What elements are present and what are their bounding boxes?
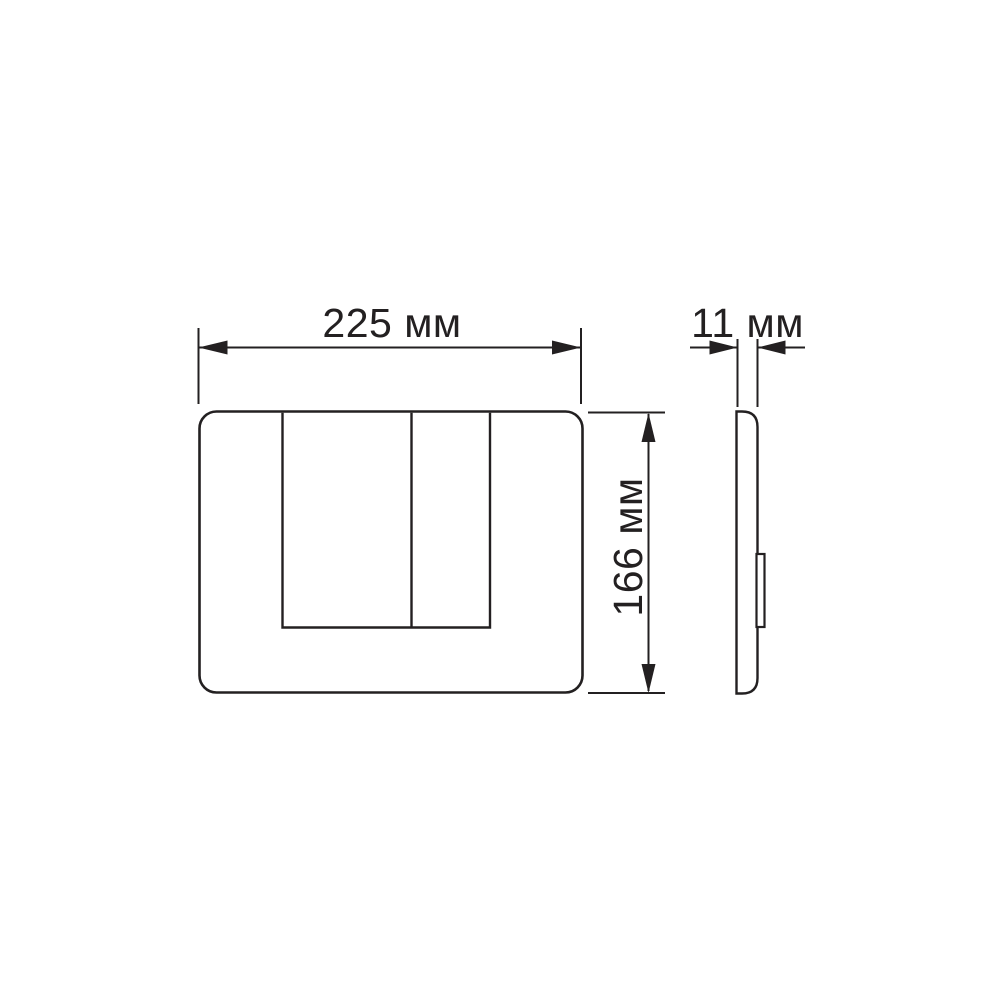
side-profile-outline — [737, 412, 758, 694]
arrowhead-left-icon — [199, 341, 228, 355]
technical-drawing-canvas: 225 мм 166 мм 11 мм — [0, 0, 1000, 1000]
dimension-width: 225 мм — [199, 300, 582, 404]
arrowhead-down-icon — [642, 664, 656, 693]
button-protrusion — [757, 554, 765, 627]
dimension-depth: 11 мм — [690, 300, 805, 407]
front-view — [200, 412, 583, 693]
side-view — [737, 412, 765, 694]
arrowhead-up-icon — [642, 413, 656, 442]
dimension-depth-label: 11 мм — [691, 300, 804, 346]
dimension-width-label: 225 мм — [322, 300, 461, 346]
arrowhead-right-icon — [552, 341, 581, 355]
plate-outline — [200, 412, 583, 693]
dimension-height-label: 166 мм — [605, 477, 651, 616]
flush-plate-dimension-drawing: 225 мм 166 мм 11 мм — [0, 0, 1000, 1000]
dimension-height: 166 мм — [588, 413, 665, 694]
